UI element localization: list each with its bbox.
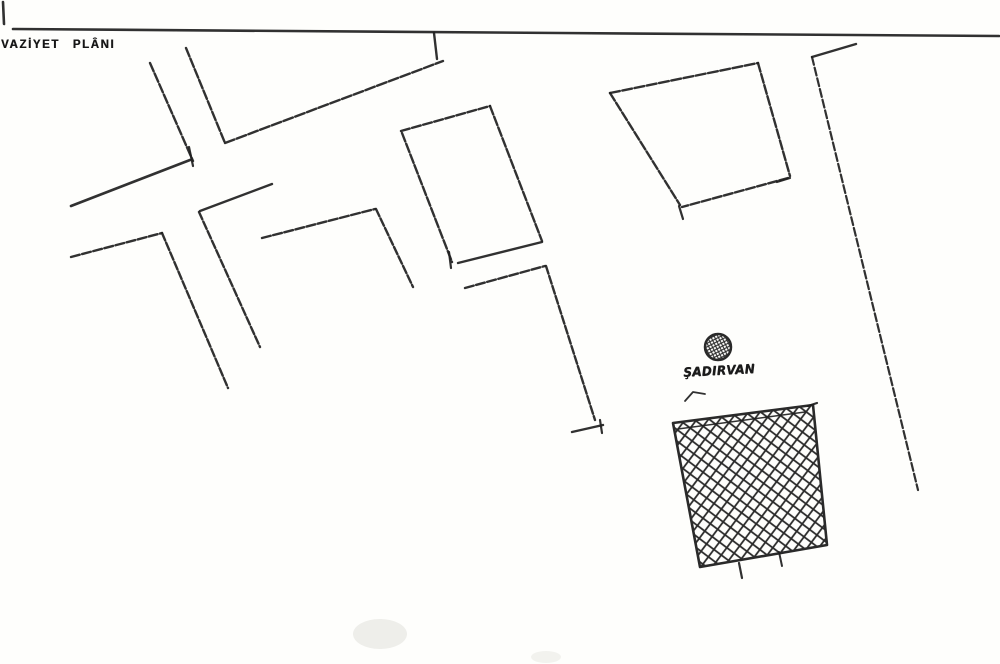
block-bottom-tick1 (739, 563, 742, 578)
street-e-down (546, 266, 595, 420)
fountain-symbol (705, 334, 731, 360)
building2-top (610, 63, 758, 93)
street-b-end-tick (189, 147, 193, 166)
hatched-building-block (673, 405, 827, 567)
street-d-edge (262, 209, 375, 238)
street-e-foot-tick (600, 420, 602, 433)
street-d-down (376, 209, 413, 287)
building1-left (402, 133, 452, 262)
building1-top (401, 106, 490, 131)
building2-left (610, 93, 680, 205)
building1-bottom (458, 242, 542, 263)
street-c-down (199, 212, 260, 347)
road-right (812, 57, 918, 490)
street-e-edge (465, 266, 545, 288)
street-c-edge (200, 184, 272, 211)
street-a-edge1 (150, 63, 193, 161)
road-diagonal-riser (434, 33, 437, 59)
plan-title: VAZİYET PLÂNI (1, 39, 115, 52)
building2-right (758, 63, 790, 176)
building1-right (490, 106, 542, 241)
site-plan-drawing (0, 0, 1000, 664)
scan-smudge (531, 651, 561, 663)
street-a-edge2 (186, 48, 225, 143)
street-b-edge2 (71, 233, 162, 257)
road-right-bend (812, 44, 856, 57)
street-b-edge1 (71, 160, 190, 206)
scan-smudge (353, 619, 407, 649)
street-e-foot (572, 425, 603, 432)
scanned-site-plan-page: VAZİYET PLÂNI ŞADIRVAN (0, 0, 1000, 664)
road-diagonal (225, 61, 443, 143)
border-top-line (13, 29, 999, 36)
label-flourish (685, 392, 705, 401)
building1-corner-tick (449, 252, 451, 268)
margin-tick (3, 2, 4, 24)
building2-bottom (682, 178, 788, 207)
